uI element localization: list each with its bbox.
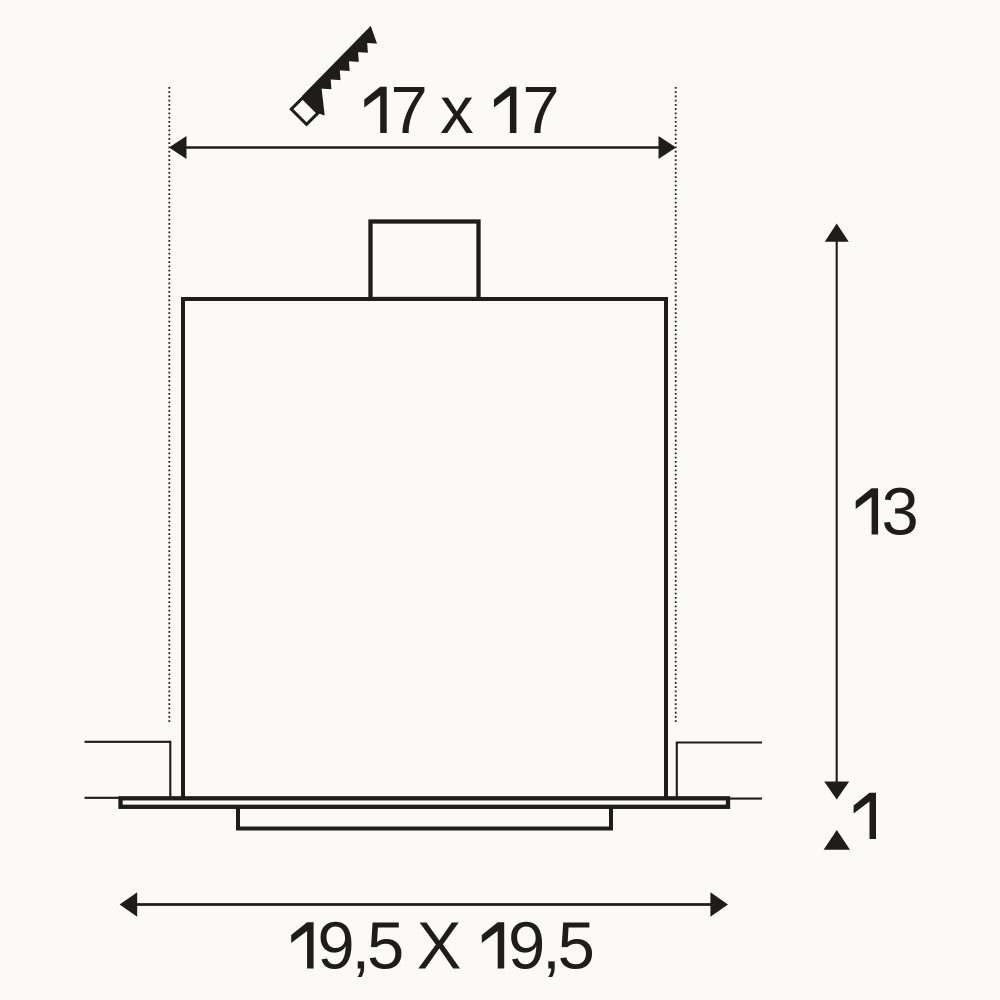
svg-text:3: 3	[882, 475, 919, 550]
svg-text:9,5X9,5: 9,5X9,5	[317, 909, 594, 984]
